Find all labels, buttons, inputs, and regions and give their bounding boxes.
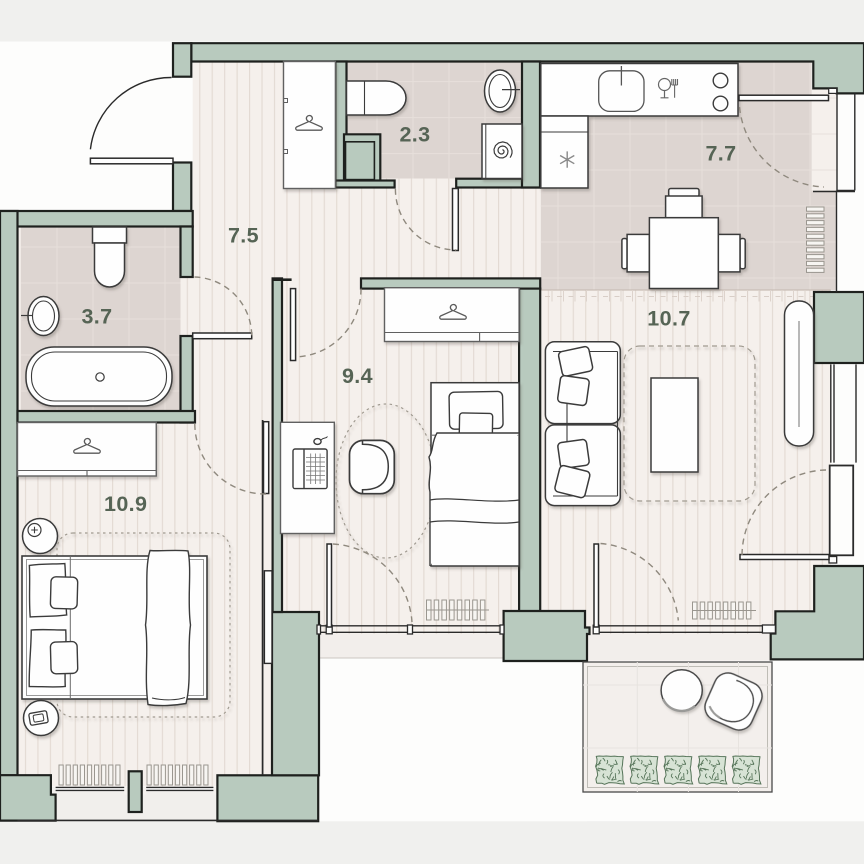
svg-text:3.7: 3.7 [81, 305, 112, 329]
svg-text:10.9: 10.9 [104, 492, 147, 516]
svg-text:2.3: 2.3 [399, 123, 430, 147]
svg-text:9.4: 9.4 [342, 364, 373, 388]
svg-text:7.5: 7.5 [228, 224, 259, 248]
svg-text:10.7: 10.7 [647, 307, 690, 331]
svg-text:7.7: 7.7 [705, 142, 736, 166]
